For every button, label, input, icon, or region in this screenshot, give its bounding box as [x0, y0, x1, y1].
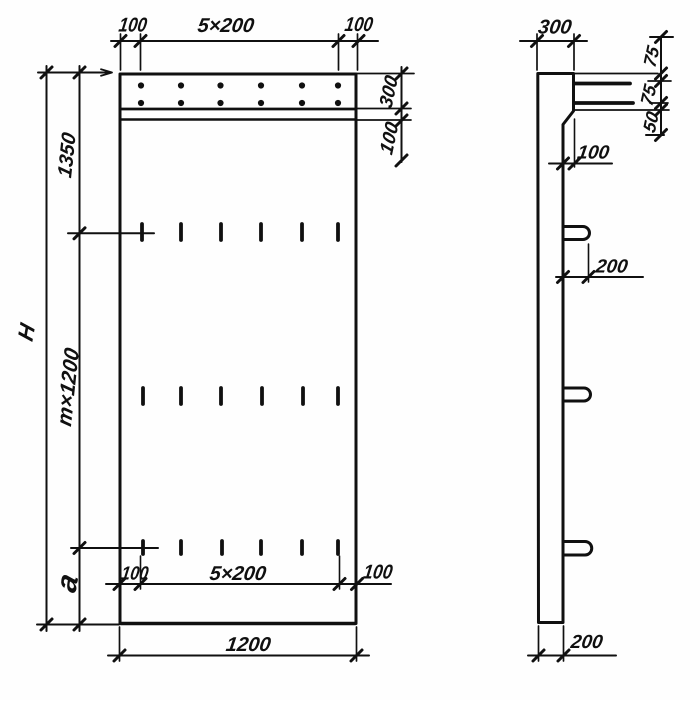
svg-text:5×200: 5×200 — [208, 563, 267, 585]
svg-text:1200: 1200 — [225, 634, 273, 656]
svg-text:75: 75 — [640, 42, 663, 69]
svg-text:300: 300 — [537, 17, 573, 39]
svg-text:5×200: 5×200 — [196, 15, 255, 37]
svg-text:100: 100 — [120, 564, 150, 585]
svg-text:100: 100 — [576, 143, 611, 164]
svg-text:1350: 1350 — [54, 130, 80, 180]
svg-text:100: 100 — [343, 14, 374, 36]
svg-text:200: 200 — [568, 632, 604, 653]
svg-text:100: 100 — [117, 15, 148, 37]
svg-text:H: H — [13, 319, 40, 343]
svg-text:200: 200 — [593, 257, 629, 278]
svg-text:100: 100 — [362, 562, 394, 584]
